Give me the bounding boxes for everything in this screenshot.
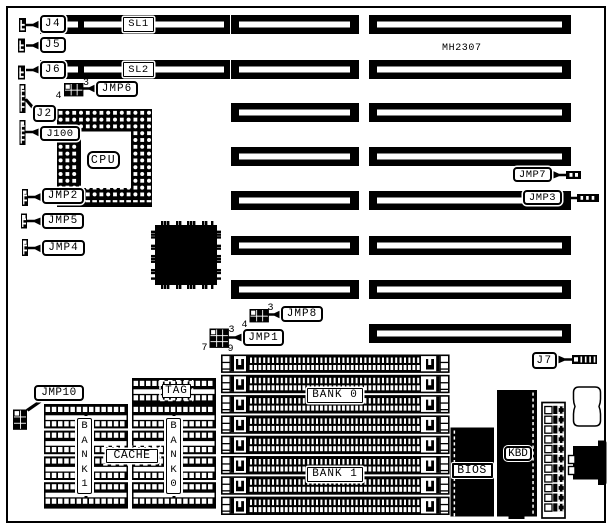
svg-text:3: 3 (83, 78, 89, 89)
svg-text:7: 7 (202, 343, 208, 354)
svg-text:4: 4 (56, 91, 62, 102)
svg-text:3: 3 (268, 303, 274, 314)
svg-text:3: 3 (229, 325, 235, 336)
svg-text:MH2307: MH2307 (442, 43, 482, 54)
svg-text:9: 9 (228, 344, 234, 355)
